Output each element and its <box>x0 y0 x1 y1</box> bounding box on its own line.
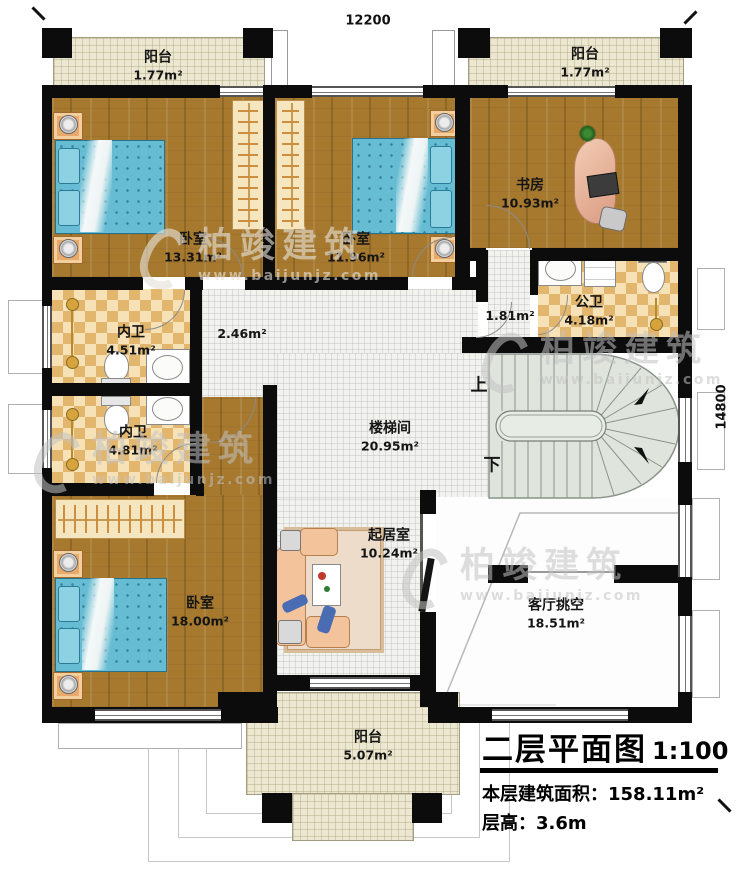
room-label-balcony-tr: 阳台1.77m² <box>560 46 609 79</box>
hall-floor <box>202 289 478 353</box>
plan-scale: 1:100 <box>652 737 728 765</box>
wall <box>42 85 220 98</box>
flower-decor <box>324 586 330 592</box>
pillow <box>58 586 80 622</box>
wall <box>245 277 408 290</box>
pillar <box>42 28 72 58</box>
pillow <box>430 190 452 228</box>
shower-head-icon <box>66 408 79 421</box>
floor-area-label: 本层建筑面积： <box>482 784 608 805</box>
title-underline <box>480 768 718 773</box>
floor-area-line: 本层建筑面积：158.11m² <box>482 780 704 806</box>
balcony-bottom-step <box>292 793 414 841</box>
wall <box>462 337 678 353</box>
void-railing <box>528 571 614 573</box>
floor-height-value: 3.6m <box>536 813 587 834</box>
shower-head-icon <box>66 356 79 369</box>
dimension-width: 12200 <box>345 14 390 29</box>
wall <box>614 565 678 583</box>
wall <box>42 277 143 290</box>
balcony-door <box>508 86 615 97</box>
stairs-down-label: 下 <box>484 455 501 476</box>
sink <box>152 397 183 421</box>
pillow <box>58 628 80 664</box>
wall <box>615 85 690 98</box>
window-sill <box>692 610 720 698</box>
room-label-balcony-tl: 阳台1.77m² <box>133 49 182 82</box>
plant-icon <box>580 126 595 141</box>
floor-plan: 阳台1.77m² 阳台1.77m² 卧室13.31m² 卧室11.96m² 书房… <box>0 0 750 877</box>
wall <box>532 248 678 261</box>
wall <box>420 490 436 514</box>
window <box>678 398 692 462</box>
dimension-tick <box>717 798 731 812</box>
room-label-hall-nook: 2.46m² <box>217 326 266 342</box>
window-sill <box>8 300 46 374</box>
pillow <box>430 146 452 184</box>
pillar <box>412 793 442 823</box>
sink <box>152 355 183 380</box>
floor-height-line: 层高：3.6m <box>482 809 587 835</box>
lamp-icon <box>59 239 78 258</box>
dimension-tick <box>683 10 697 24</box>
pillar <box>262 793 292 823</box>
side-table <box>278 620 302 644</box>
window <box>95 709 221 721</box>
room-label-balcony-bottom: 阳台5.07m² <box>343 729 392 762</box>
sliding-door <box>310 677 410 689</box>
lamp-icon <box>59 115 78 134</box>
room-label-bedroom-mid: 卧室11.96m² <box>327 231 385 264</box>
side-table <box>280 530 301 551</box>
room-label-ensuite-bottom: 内卫4.81m² <box>108 424 157 457</box>
window <box>492 709 628 721</box>
wall <box>452 277 478 290</box>
room-label-living-void: 客厅挑空18.51m² <box>527 597 585 630</box>
closet <box>55 499 185 539</box>
window-sill <box>8 404 46 474</box>
bed-sheet <box>396 138 428 232</box>
flower-decor <box>318 572 326 580</box>
armchair <box>300 528 338 556</box>
wall <box>190 289 202 396</box>
lamp-icon <box>59 675 78 694</box>
wardrobe <box>232 100 264 230</box>
shower-rail <box>655 298 657 320</box>
pillar <box>660 28 692 58</box>
wall <box>42 483 154 496</box>
room-label-public-bath: 公卫4.18m² <box>564 294 613 327</box>
room-label-bedroom-big: 卧室18.00m² <box>171 595 229 628</box>
computer-monitor <box>587 172 620 198</box>
wall <box>428 692 458 723</box>
window-frame <box>432 30 455 88</box>
wall <box>218 692 276 718</box>
wall <box>488 565 528 583</box>
room-label-stair-hall: 楼梯间20.95m² <box>361 420 419 453</box>
window-sill <box>697 268 725 330</box>
towel-rail <box>71 304 73 358</box>
room-label-bath-lobby: 1.81m² <box>485 308 534 324</box>
dimension-height: 14800 <box>715 384 730 429</box>
window-frame <box>271 30 288 88</box>
window <box>678 616 692 692</box>
room-label-sitting-room: 起居室10.24m² <box>360 527 418 560</box>
room-label-ensuite-top: 内卫4.51m² <box>106 324 155 357</box>
staircase <box>488 353 680 499</box>
pillar <box>458 28 490 58</box>
window <box>42 410 52 468</box>
shower-head-icon <box>66 458 79 471</box>
window <box>42 306 52 368</box>
shower-head-icon <box>66 298 79 311</box>
wall <box>42 85 52 723</box>
lamp-icon <box>59 553 78 572</box>
floor-area-value: 158.11m² <box>608 784 704 805</box>
window-sill <box>58 723 242 749</box>
bed-sheet <box>80 140 112 232</box>
wall <box>196 483 204 496</box>
lamp-icon <box>435 113 454 132</box>
stairs-up-label: 上 <box>471 375 488 396</box>
wardrobe <box>276 100 305 230</box>
room-label-study: 书房10.93m² <box>501 177 559 210</box>
window-sill <box>692 498 720 580</box>
wall <box>42 383 202 396</box>
window <box>678 505 692 577</box>
pillow <box>58 190 80 226</box>
toilet <box>642 262 665 293</box>
window <box>312 86 423 97</box>
bed-sheet <box>82 578 114 670</box>
wall <box>455 248 486 261</box>
wall <box>263 385 277 707</box>
pillow <box>58 148 80 184</box>
coffee-table <box>312 564 341 606</box>
plan-title: 二层平面图 <box>482 724 647 769</box>
dimension-tick <box>31 6 45 20</box>
wall <box>263 97 275 289</box>
balcony-door <box>220 86 263 97</box>
pillar <box>243 28 273 58</box>
room-label-bedroom-left: 卧室13.31m² <box>164 231 222 264</box>
shower-head-icon <box>650 318 663 331</box>
floor-height-label: 层高： <box>482 813 536 834</box>
